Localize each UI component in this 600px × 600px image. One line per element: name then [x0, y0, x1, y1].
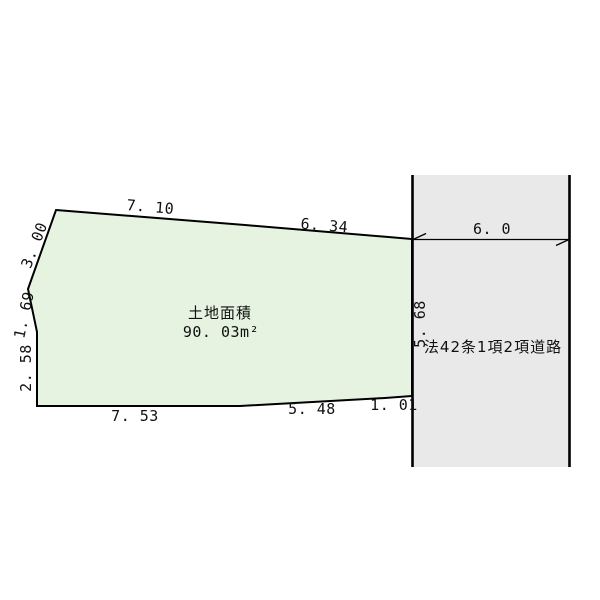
road-strip: 法42条1項2項道路	[412, 175, 570, 467]
dim-top-1: 7. 10	[126, 196, 175, 218]
dim-left-lower: 2. 58	[17, 344, 35, 392]
road-area	[412, 175, 570, 467]
parcel-area-value: 90. 03m²	[183, 323, 259, 341]
dim-bottom-3: 1. 01	[370, 396, 418, 414]
dim-bottom-1: 7. 53	[111, 407, 159, 425]
road-name-label: 法42条1項2項道路	[424, 338, 562, 356]
parcel-area-title: 土地面積	[188, 304, 252, 322]
dim-bottom-2: 5. 48	[288, 400, 336, 418]
diagram-canvas: 法42条1項2項道路 土地面積 90. 03m² 6. 0 7. 10 6. 3…	[0, 0, 600, 600]
land-survey-diagram: 法42条1項2項道路 土地面積 90. 03m² 6. 0 7. 10 6. 3…	[0, 0, 600, 600]
road-width-label: 6. 0	[473, 220, 511, 238]
dim-top-2: 6. 34	[300, 215, 349, 237]
dim-road-frontage: 5. 68	[411, 300, 429, 348]
